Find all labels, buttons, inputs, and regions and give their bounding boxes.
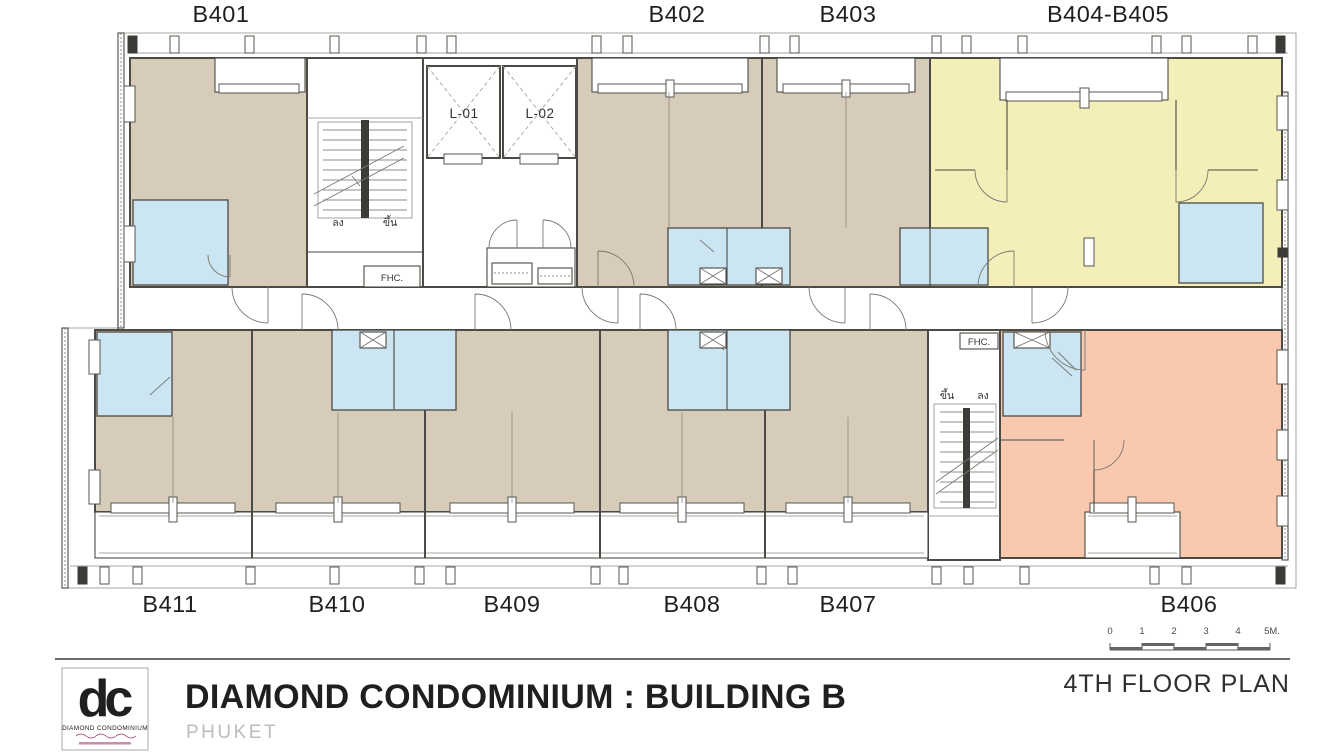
logo-monogram: dc [78, 670, 133, 728]
logo-name: DIAMOND CONDOMINIUM [62, 725, 148, 732]
bottom-columns [78, 567, 1285, 584]
label-b401: B401 [193, 1, 250, 27]
label-b406: B406 [1161, 591, 1218, 617]
scale-bar: 0 1 2 3 4 5M. [1107, 626, 1280, 650]
fhc-label-2: FHC. [968, 337, 990, 348]
stair1-down-label: ลง [332, 217, 344, 229]
bathroom-b404 [1179, 203, 1263, 283]
scale-tick-1: 1 [1139, 626, 1144, 637]
label-b403: B403 [820, 1, 877, 27]
label-b404-b405: B404-B405 [1047, 1, 1169, 27]
bathroom-pair-b403-b404 [900, 228, 988, 285]
scale-end-label: 5M. [1264, 626, 1280, 637]
floor-plan-drawing: ลง ขึ้น FHC. L-01 L-02 FHC. ขึ้น ลง [0, 0, 1342, 754]
logo-tagline-bar [79, 742, 131, 745]
label-b411: B411 [142, 591, 197, 617]
label-b409: B409 [484, 591, 541, 617]
scale-tick-3: 3 [1203, 626, 1208, 637]
elevator-2-label: L-02 [525, 106, 554, 121]
project-title: DIAMOND CONDOMINIUM : BUILDING B [185, 678, 846, 716]
units [95, 58, 1282, 560]
fhc-label-1: FHC. [381, 273, 403, 284]
bathroom-pair-b408-b407 [668, 330, 790, 410]
stair2-down-label: ลง [977, 390, 989, 402]
stair1-up-label: ขึ้น [383, 215, 397, 229]
scale-tick-2: 2 [1171, 626, 1176, 637]
scale-tick-0: 0 [1107, 626, 1112, 637]
bathroom-b411 [97, 332, 172, 416]
title-block: dc DIAMOND CONDOMINIUM DIAMOND CONDOMINI… [55, 626, 1290, 750]
logo: dc DIAMOND CONDOMINIUM [62, 668, 148, 750]
label-b410: B410 [309, 591, 366, 617]
top-columns [128, 36, 1285, 53]
stair2-up-label: ขึ้น [940, 388, 954, 402]
label-b402: B402 [649, 1, 706, 27]
bathroom-b401 [133, 200, 228, 285]
elevator-1-label: L-01 [449, 106, 478, 121]
scale-tick-4: 4 [1235, 626, 1240, 637]
label-b407: B407 [820, 591, 877, 617]
project-location: PHUKET [186, 722, 278, 743]
label-b408: B408 [664, 591, 721, 617]
plan-title: 4TH FLOOR PLAN [1063, 670, 1290, 698]
